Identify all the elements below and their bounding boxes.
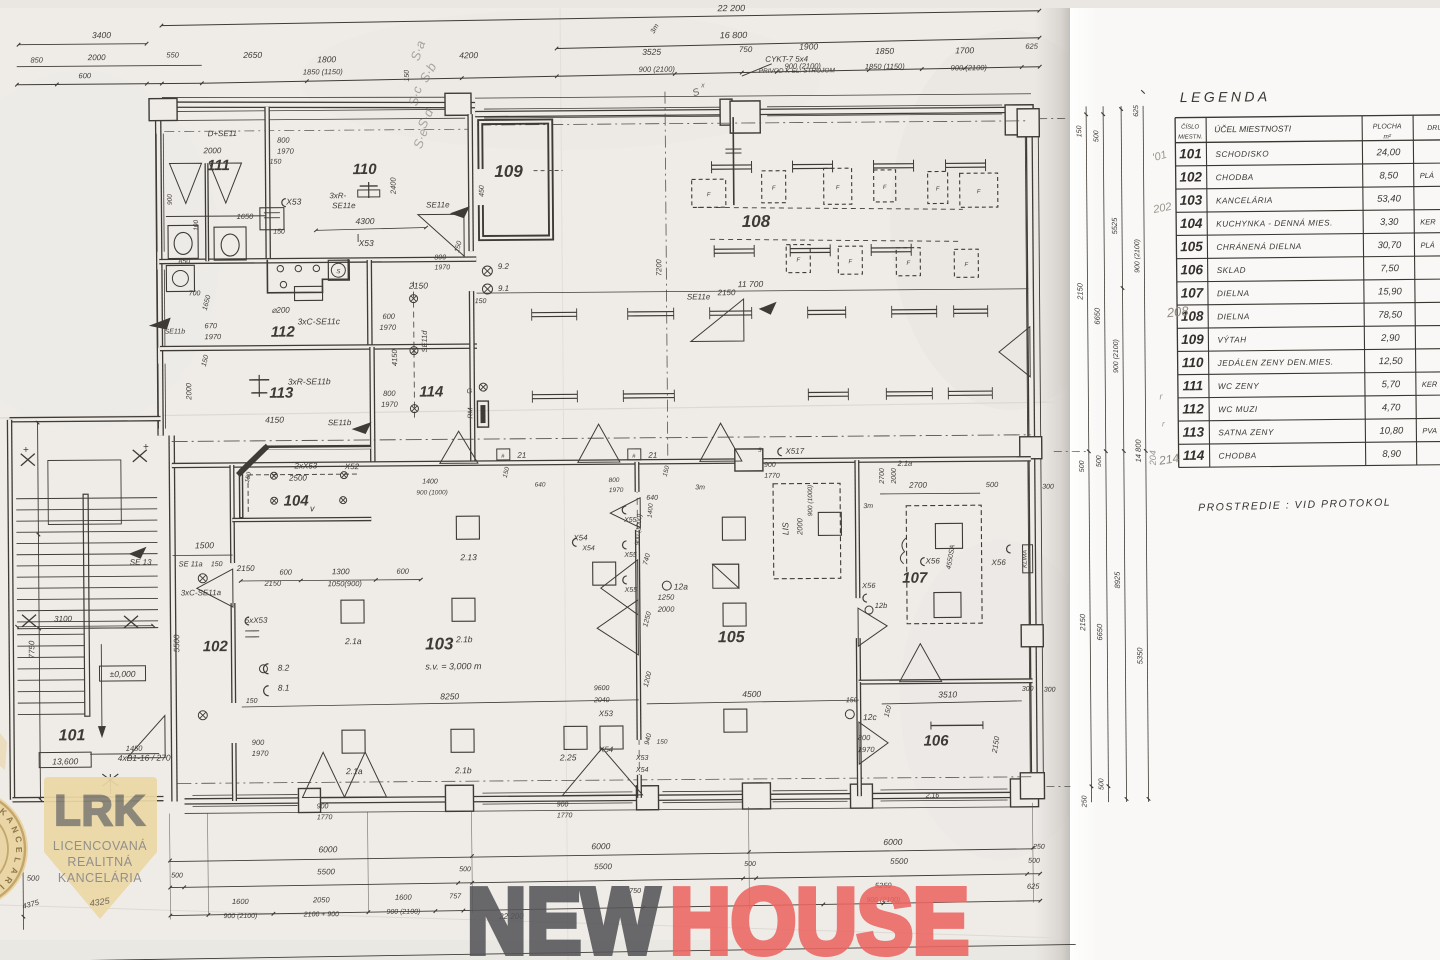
svg-text:2150: 2150	[263, 579, 282, 588]
svg-text:1970: 1970	[204, 332, 222, 341]
svg-text:1400: 1400	[422, 478, 438, 485]
svg-text:2.1b: 2.1b	[454, 765, 472, 775]
svg-text:113: 113	[269, 385, 294, 402]
svg-text:450: 450	[479, 185, 486, 197]
svg-text:2150: 2150	[1078, 613, 1087, 632]
svg-text:r: r	[1162, 419, 1165, 428]
svg-text:11 700: 11 700	[738, 279, 764, 289]
svg-text:SE11e: SE11e	[332, 201, 356, 210]
svg-text:2050: 2050	[312, 895, 331, 904]
svg-text:900 (1000): 900 (1000)	[807, 485, 814, 517]
svg-text:SE11b: SE11b	[165, 328, 186, 335]
svg-text:1970: 1970	[435, 264, 451, 271]
svg-text:8.1: 8.1	[278, 683, 290, 693]
svg-text:3525: 3525	[642, 47, 661, 57]
svg-text:PVA: PVA	[1422, 426, 1437, 435]
svg-text:SATNA ZENY: SATNA ZENY	[1218, 428, 1274, 438]
svg-text:1800: 1800	[317, 54, 336, 64]
svg-text:F: F	[977, 189, 981, 195]
svg-text:109: 109	[494, 162, 523, 181]
svg-text:E: E	[14, 847, 24, 853]
svg-text:1970: 1970	[381, 400, 399, 409]
svg-text:101: 101	[1179, 146, 1202, 161]
svg-text:1900: 1900	[799, 41, 818, 51]
svg-text:600: 600	[279, 568, 292, 577]
svg-text:X56: X56	[861, 581, 876, 590]
svg-text:X55: X55	[624, 587, 638, 594]
svg-text:X52: X52	[344, 462, 360, 471]
svg-text:2xX53: 2xX53	[294, 461, 318, 470]
svg-text:150: 150	[211, 561, 223, 568]
svg-text:107: 107	[1181, 285, 1205, 300]
svg-text:9600: 9600	[594, 685, 610, 692]
svg-text:1500: 1500	[195, 540, 214, 550]
svg-text:X53: X53	[358, 238, 374, 248]
svg-text:106: 106	[923, 732, 949, 749]
svg-text:150: 150	[273, 229, 285, 236]
svg-text:X54: X54	[572, 533, 588, 542]
svg-text:±0,000: ±0,000	[110, 669, 136, 679]
svg-text:2000: 2000	[202, 146, 221, 155]
svg-text:8250: 8250	[440, 691, 459, 701]
svg-text:102: 102	[203, 638, 229, 655]
svg-text:4150: 4150	[390, 349, 399, 367]
svg-text:G: G	[467, 388, 473, 395]
svg-text:500: 500	[1098, 778, 1105, 790]
svg-text:150: 150	[657, 739, 668, 746]
svg-text:500: 500	[1096, 455, 1103, 467]
svg-text:15,90: 15,90	[1378, 286, 1403, 297]
svg-text:PRIVOD K EL. STROJOM: PRIVOD K EL. STROJOM	[759, 67, 836, 75]
svg-text:X56: X56	[924, 556, 940, 565]
svg-text:800: 800	[609, 477, 620, 484]
svg-text:KANCELÁRIA: KANCELÁRIA	[58, 870, 142, 885]
svg-text:250: 250	[1081, 795, 1088, 808]
svg-text:2150: 2150	[236, 564, 255, 573]
svg-text:X56: X56	[991, 558, 1007, 567]
svg-text:204: 204	[1148, 450, 1158, 466]
svg-text:2000: 2000	[795, 517, 804, 536]
svg-text:3400: 3400	[92, 30, 111, 40]
svg-text:100: 100	[193, 219, 200, 230]
svg-text:700: 700	[189, 290, 201, 297]
svg-text:10,80: 10,80	[1379, 425, 1404, 436]
svg-text:2000: 2000	[657, 605, 676, 614]
svg-text:v: v	[310, 503, 315, 513]
svg-text:VÝTAH: VÝTAH	[1217, 334, 1246, 344]
svg-text:2500: 2500	[288, 473, 307, 482]
svg-text:3xR-: 3xR-	[329, 191, 346, 200]
svg-text:x: x	[700, 82, 705, 89]
svg-text:110: 110	[1182, 355, 1204, 370]
svg-text:F: F	[772, 186, 776, 192]
svg-text:X53: X53	[285, 196, 301, 206]
svg-text:8925: 8925	[1113, 571, 1122, 589]
svg-text:113: 113	[1183, 425, 1205, 440]
svg-text:LEGENDA: LEGENDA	[1180, 88, 1271, 105]
svg-text:3xR-SE11b: 3xR-SE11b	[288, 376, 331, 386]
svg-text:KER: KER	[1420, 217, 1436, 226]
svg-text:900: 900	[317, 803, 329, 810]
svg-text:4150: 4150	[265, 415, 284, 425]
svg-text:150: 150	[846, 697, 858, 704]
svg-text:1400: 1400	[647, 503, 655, 518]
svg-text:208: 208	[1165, 303, 1190, 320]
svg-text:ÚČEL MIESTNOSTI: ÚČEL MIESTNOSTI	[1214, 123, 1292, 134]
svg-text:150: 150	[404, 70, 411, 82]
svg-text:109: 109	[1181, 332, 1204, 347]
svg-text:8,50: 8,50	[1379, 170, 1398, 181]
svg-text:NEW: NEW	[467, 869, 659, 960]
svg-text:101: 101	[59, 727, 86, 744]
svg-text:F: F	[836, 185, 840, 191]
svg-text:+: +	[23, 445, 29, 456]
svg-text:5500: 5500	[890, 857, 908, 866]
svg-text:4200: 4200	[459, 50, 478, 60]
svg-text:104: 104	[284, 492, 310, 509]
svg-text:SE11e: SE11e	[687, 292, 711, 301]
svg-text:2.1a: 2.1a	[345, 766, 363, 776]
svg-text:MIESTN.: MIESTN.	[1178, 134, 1202, 140]
svg-text:107: 107	[902, 570, 928, 587]
svg-text:1970: 1970	[609, 487, 624, 494]
svg-text:RM: RM	[467, 408, 474, 419]
svg-text:800: 800	[277, 136, 290, 145]
svg-text:150: 150	[270, 159, 282, 166]
svg-text:6000: 6000	[591, 841, 610, 851]
svg-text:3m: 3m	[863, 503, 873, 510]
svg-text:500: 500	[1093, 130, 1100, 142]
svg-text:2.1a: 2.1a	[897, 459, 913, 468]
svg-text:SE 11a: SE 11a	[179, 559, 203, 568]
svg-text:PLOCHA: PLOCHA	[1373, 123, 1402, 130]
svg-text:1970: 1970	[379, 323, 397, 332]
svg-text:5500: 5500	[172, 634, 181, 652]
svg-text:114: 114	[1183, 448, 1205, 463]
svg-text:PLÁ: PLÁ	[1420, 171, 1434, 180]
svg-text:PLÁ: PLÁ	[1420, 241, 1434, 250]
svg-text:900: 900	[557, 801, 569, 808]
svg-text:DRU: DRU	[1427, 125, 1440, 132]
svg-text:600: 600	[382, 312, 395, 321]
svg-text:1970: 1970	[252, 749, 270, 758]
svg-text:CHODBA: CHODBA	[1216, 173, 1254, 182]
svg-text:103: 103	[1180, 193, 1203, 208]
svg-text:CHODBA: CHODBA	[1219, 451, 1257, 460]
svg-text:21: 21	[516, 451, 526, 460]
svg-text:2150: 2150	[1075, 282, 1084, 301]
svg-text:LRK: LRK	[54, 787, 145, 835]
svg-text:2.1a: 2.1a	[344, 636, 362, 646]
svg-text:2,90: 2,90	[1380, 333, 1400, 344]
svg-text:8,90: 8,90	[1382, 449, 1401, 460]
svg-text:WC ZENY: WC ZENY	[1218, 382, 1259, 391]
svg-text:500: 500	[986, 480, 999, 489]
svg-text:4300: 4300	[355, 216, 374, 226]
svg-text:150: 150	[1076, 125, 1083, 137]
svg-text:4,70: 4,70	[1382, 402, 1401, 413]
svg-text:X55: X55	[623, 552, 637, 559]
svg-text:800: 800	[434, 254, 446, 261]
svg-text:1600: 1600	[395, 893, 413, 902]
svg-text:8.2: 8.2	[278, 663, 290, 673]
svg-text:900: 900	[252, 738, 265, 747]
svg-text:106: 106	[1180, 262, 1203, 277]
svg-text:900 (2100): 900 (2100)	[1113, 339, 1120, 373]
svg-text:12a: 12a	[674, 581, 689, 591]
svg-text:850: 850	[178, 258, 190, 265]
svg-text:X54: X54	[581, 545, 595, 552]
svg-text:500: 500	[27, 874, 40, 883]
svg-text:500: 500	[1028, 858, 1040, 865]
svg-text:2150: 2150	[408, 281, 428, 291]
svg-text:SKLAD: SKLAD	[1217, 266, 1246, 275]
svg-text:1970: 1970	[858, 745, 876, 754]
svg-text:KANCELÁRIA: KANCELÁRIA	[1216, 195, 1273, 206]
svg-text:2100 + 900: 2100 + 900	[303, 911, 339, 918]
svg-text:6650: 6650	[1095, 623, 1104, 641]
svg-text:757: 757	[449, 893, 462, 900]
svg-text:625: 625	[1133, 105, 1140, 117]
svg-text:6000: 6000	[318, 844, 337, 854]
svg-text:6000: 6000	[883, 837, 902, 847]
svg-text:625: 625	[1025, 42, 1038, 51]
svg-text:1650: 1650	[237, 212, 255, 221]
svg-text:300: 300	[1042, 484, 1054, 491]
svg-text:1770: 1770	[557, 812, 573, 819]
svg-text:1450: 1450	[126, 744, 144, 753]
svg-text:900 (2100): 900 (2100)	[951, 63, 988, 72]
svg-text:⌀200: ⌀200	[272, 306, 291, 315]
svg-text:5350: 5350	[1135, 647, 1144, 665]
svg-text:5,70: 5,70	[1382, 379, 1401, 390]
svg-text:7750: 7750	[27, 640, 36, 658]
svg-text:2.13: 2.13	[459, 552, 477, 562]
svg-text:12b: 12b	[875, 601, 888, 610]
svg-text:625: 625	[1027, 882, 1040, 891]
svg-text:1770: 1770	[317, 814, 333, 821]
svg-text:103: 103	[425, 634, 454, 653]
svg-text:105: 105	[1180, 239, 1203, 254]
svg-text:850: 850	[30, 56, 43, 65]
svg-text:1850: 1850	[875, 46, 894, 56]
svg-text:7,50: 7,50	[1380, 263, 1399, 274]
svg-text:1600: 1600	[232, 897, 250, 906]
svg-text:22 200: 22 200	[716, 3, 745, 13]
svg-text:102: 102	[1179, 169, 1202, 184]
svg-text:s.v. = 3,000 m: s.v. = 3,000 m	[425, 661, 482, 671]
svg-text:111: 111	[1183, 378, 1204, 393]
svg-text:X517: X517	[784, 447, 804, 456]
svg-text:2700: 2700	[879, 468, 886, 485]
svg-text:1850 (1150): 1850 (1150)	[865, 62, 905, 71]
svg-text:X55: X55	[623, 517, 637, 524]
svg-text:F: F	[848, 259, 852, 265]
svg-text:24,00: 24,00	[1376, 147, 1402, 158]
svg-text:108: 108	[742, 212, 771, 231]
svg-text:900 (2100): 900 (2100)	[1134, 239, 1141, 273]
svg-text:1700: 1700	[955, 45, 974, 55]
svg-text:SE11e: SE11e	[426, 200, 450, 209]
svg-text:53,40: 53,40	[1377, 194, 1402, 205]
svg-text:CYKT-7 5x4: CYKT-7 5x4	[765, 55, 808, 64]
svg-text:CHRÁNENÁ DIELNA: CHRÁNENÁ DIELNA	[1216, 241, 1301, 252]
svg-text:F: F	[883, 185, 887, 191]
svg-text:2.1b: 2.1b	[455, 634, 473, 644]
svg-text:640: 640	[646, 495, 658, 502]
svg-text:16 800: 16 800	[720, 30, 748, 40]
svg-text:2400: 2400	[389, 177, 398, 196]
svg-text:800: 800	[858, 733, 871, 742]
svg-text:550: 550	[166, 50, 179, 59]
svg-text:600: 600	[79, 71, 92, 80]
svg-text:2700: 2700	[908, 481, 927, 490]
svg-text:800: 800	[383, 389, 396, 398]
svg-text:KLIMA: KLIMA	[1023, 550, 1029, 568]
svg-text:250: 250	[1032, 844, 1045, 851]
svg-text:KUCHYNKA - DENNÁ MIES.: KUCHYNKA - DENNÁ MIES.	[1216, 217, 1333, 228]
svg-text:X54: X54	[598, 745, 614, 754]
svg-text:DIELNA: DIELNA	[1217, 289, 1250, 298]
svg-text:+: +	[143, 442, 149, 453]
svg-text:3,30: 3,30	[1380, 217, 1399, 228]
svg-text:640: 640	[535, 482, 546, 489]
svg-text:SCHODISKO: SCHODISKO	[1215, 149, 1269, 159]
svg-text:REALITNÁ: REALITNÁ	[67, 854, 132, 869]
svg-text:114: 114	[419, 383, 444, 400]
svg-text:2000: 2000	[184, 382, 193, 401]
svg-text:6650: 6650	[1093, 307, 1102, 325]
svg-text:ČÍSLO: ČÍSLO	[1181, 123, 1199, 130]
svg-text:300: 300	[1044, 687, 1056, 694]
svg-text:LICENCOVANÁ: LICENCOVANÁ	[53, 838, 147, 853]
svg-text:SE11d: SE11d	[420, 330, 429, 353]
svg-text:500: 500	[171, 872, 183, 879]
svg-text:105: 105	[718, 629, 746, 646]
svg-text:900 (2100): 900 (2100)	[639, 65, 676, 74]
svg-text:13,600: 13,600	[52, 756, 78, 766]
svg-text:900 (2100): 900 (2100)	[223, 913, 257, 920]
svg-text:JEDÁLEN ZENY DEN.MIES.: JEDÁLEN ZENY DEN.MIES.	[1217, 357, 1334, 368]
svg-text:KER: KER	[1422, 380, 1438, 389]
svg-text:3m: 3m	[695, 484, 705, 491]
svg-text:DIELNA: DIELNA	[1217, 312, 1250, 321]
svg-text:30,70: 30,70	[1377, 240, 1402, 251]
svg-text:F: F	[707, 192, 711, 198]
svg-text:SE11b: SE11b	[328, 418, 352, 427]
svg-text:1850 (1150): 1850 (1150)	[303, 67, 343, 76]
svg-text:110: 110	[353, 161, 378, 178]
svg-text:2.25: 2.25	[559, 752, 577, 762]
svg-text:2040: 2040	[593, 697, 610, 704]
svg-text:F: F	[906, 261, 910, 267]
svg-text:2650: 2650	[242, 50, 262, 60]
svg-text:F: F	[964, 262, 968, 268]
svg-text:21: 21	[647, 451, 657, 460]
svg-text:X53: X53	[635, 755, 649, 762]
svg-text:900: 900	[167, 194, 174, 205]
svg-text:104: 104	[1180, 216, 1203, 231]
svg-text:S: S	[336, 269, 340, 275]
svg-text:12c: 12c	[863, 712, 878, 722]
svg-text:X54: X54	[635, 767, 649, 774]
svg-text:3xC-SE11c: 3xC-SE11c	[298, 316, 341, 326]
svg-text:112: 112	[271, 324, 296, 341]
svg-text:2150: 2150	[717, 288, 736, 297]
svg-text:5525: 5525	[1110, 217, 1119, 235]
svg-text:HOUSE: HOUSE	[670, 869, 969, 960]
svg-text:X53: X53	[598, 709, 614, 718]
svg-text:4500: 4500	[742, 689, 761, 699]
svg-text:2000: 2000	[891, 468, 898, 485]
svg-text:m²: m²	[1383, 133, 1391, 140]
svg-text:5500: 5500	[317, 867, 335, 876]
svg-text:SE 13: SE 13	[130, 558, 152, 567]
svg-text:1300: 1300	[332, 567, 350, 576]
svg-text:112: 112	[1182, 401, 1204, 416]
svg-text:12,50: 12,50	[1379, 356, 1404, 367]
svg-text:500: 500	[744, 861, 756, 868]
svg-text:F: F	[796, 258, 800, 264]
svg-text:900 (1000): 900 (1000)	[416, 489, 448, 496]
svg-text:900 (2100): 900 (2100)	[386, 909, 420, 916]
svg-text:500: 500	[1079, 460, 1086, 472]
svg-text:3100: 3100	[54, 614, 72, 623]
svg-text:1250: 1250	[658, 593, 676, 602]
svg-text:670: 670	[204, 321, 217, 330]
svg-text:600: 600	[396, 567, 409, 576]
svg-text:14 800: 14 800	[1134, 439, 1143, 463]
svg-text:3xC-SE11a: 3xC-SE11a	[181, 588, 222, 597]
svg-text:1770: 1770	[764, 473, 780, 480]
svg-text:3510: 3510	[938, 689, 957, 699]
svg-text:1970: 1970	[277, 147, 295, 156]
svg-text:LIS: LIS	[780, 522, 790, 535]
svg-text:F: F	[936, 186, 940, 192]
svg-text:7200: 7200	[654, 258, 663, 276]
svg-text:900: 900	[764, 462, 776, 469]
svg-text:9.2: 9.2	[498, 262, 510, 271]
svg-text:78,50: 78,50	[1378, 309, 1403, 320]
svg-text:150: 150	[475, 298, 487, 305]
svg-text:WC MUZI: WC MUZI	[1218, 405, 1258, 414]
svg-text:9.1: 9.1	[498, 284, 509, 293]
svg-text:750: 750	[739, 45, 753, 54]
svg-text:2.16: 2.16	[925, 793, 940, 800]
svg-text:150: 150	[246, 698, 258, 705]
svg-text:2000: 2000	[87, 53, 106, 62]
svg-text:300: 300	[1022, 686, 1034, 693]
svg-text:D+SE11: D+SE11	[208, 129, 238, 138]
